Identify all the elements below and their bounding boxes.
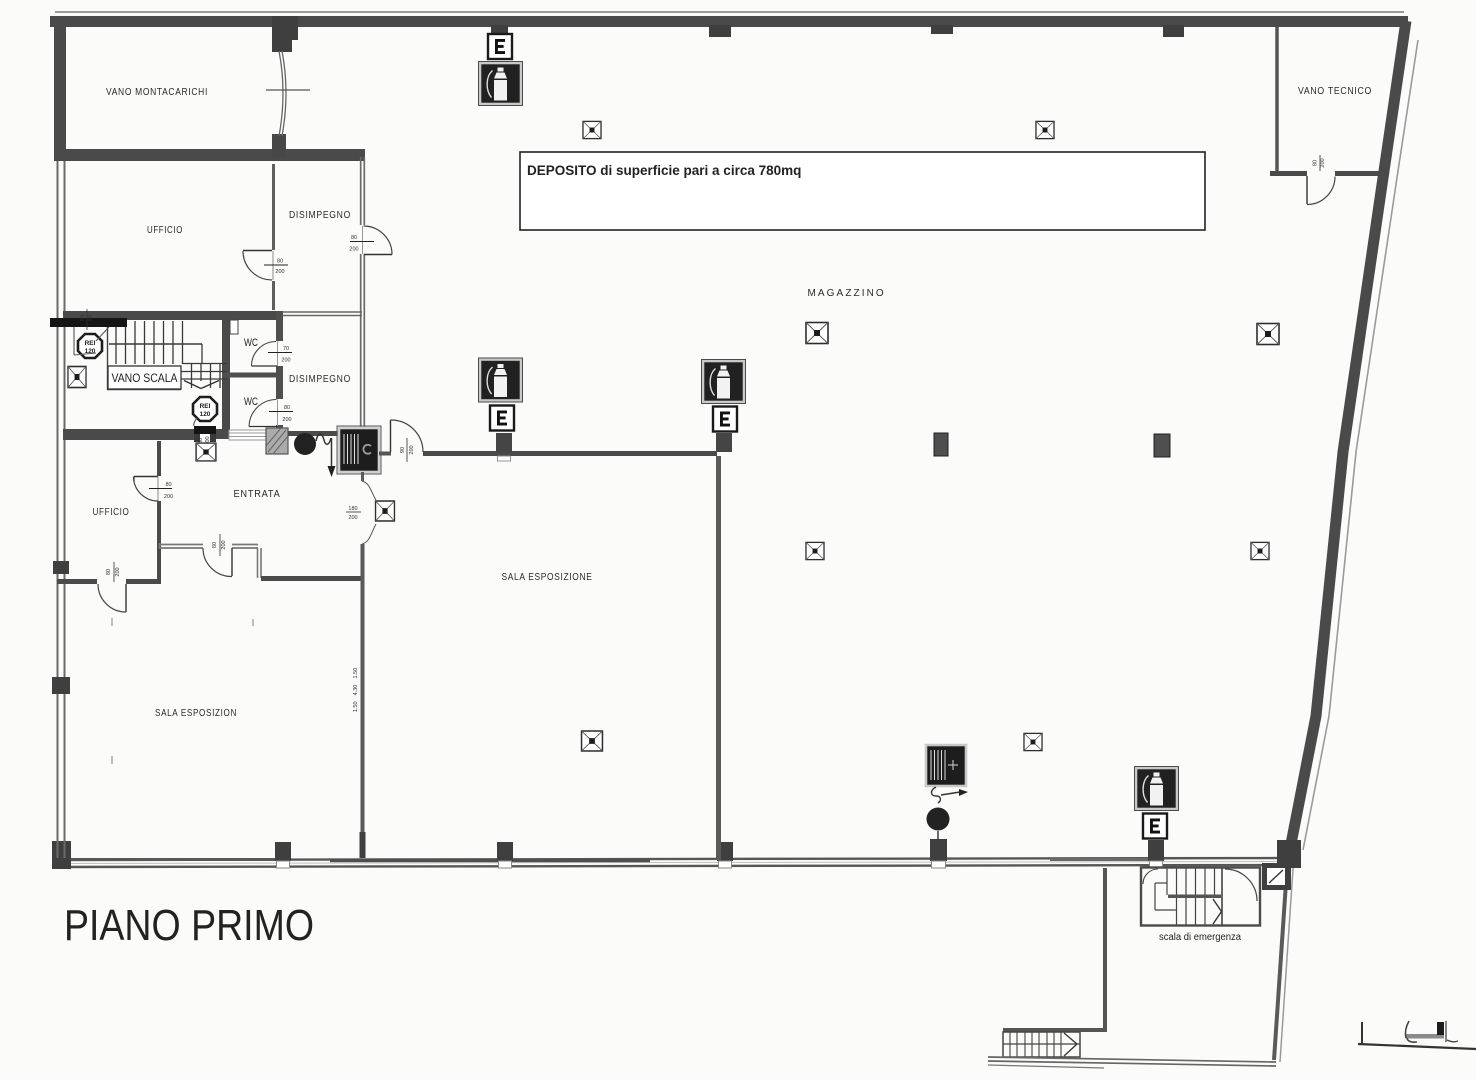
svg-text:200: 200	[348, 515, 357, 521]
svg-text:200: 200	[115, 567, 121, 576]
svg-text:200: 200	[282, 417, 291, 423]
svg-text:80: 80	[1313, 160, 1319, 166]
svg-text:MAGAZZINO: MAGAZZINO	[808, 288, 885, 299]
svg-text:80: 80	[165, 482, 171, 488]
svg-text:SALA ESPOSIZION: SALA ESPOSIZION	[155, 708, 237, 719]
svg-text:200: 200	[164, 494, 173, 500]
svg-text:UFFICIO: UFFICIO	[93, 507, 130, 518]
svg-text:200: 200	[349, 247, 358, 253]
svg-text:VANO MONTACARICHI: VANO MONTACARICHI	[106, 87, 208, 98]
svg-text:80: 80	[80, 315, 86, 321]
svg-text:WC: WC	[244, 337, 258, 349]
svg-text:UFFICIO: UFFICIO	[147, 225, 183, 236]
svg-text:SALA ESPOSIZIONE: SALA ESPOSIZIONE	[502, 572, 593, 583]
svg-text:180: 180	[348, 506, 357, 512]
svg-text:scala di emergenza: scala di emergenza	[1159, 932, 1241, 943]
svg-text:VANO SCALA: VANO SCALA	[112, 371, 178, 385]
svg-text:80: 80	[212, 542, 218, 548]
svg-text:70: 70	[283, 346, 289, 352]
svg-text:DEPOSITO di superficie pari a: DEPOSITO di superficie pari a circa 780m…	[527, 163, 801, 178]
svg-text:200: 200	[409, 445, 415, 454]
svg-text:80: 80	[106, 569, 112, 575]
svg-text:80: 80	[277, 259, 283, 265]
svg-text:200: 200	[1320, 158, 1326, 167]
svg-text:80: 80	[284, 405, 290, 411]
svg-text:90: 90	[88, 315, 94, 321]
svg-text:VANO TECNICO: VANO TECNICO	[1298, 86, 1372, 97]
svg-text:PIANO PRIMO: PIANO PRIMO	[64, 901, 314, 950]
svg-text:DISIMPEGNO: DISIMPEGNO	[289, 374, 351, 385]
svg-text:DISIMPEGNO: DISIMPEGNO	[289, 210, 351, 221]
svg-text:90: 90	[400, 447, 406, 453]
svg-text:200: 200	[275, 269, 284, 275]
svg-text:WC: WC	[244, 396, 258, 408]
svg-text:200: 200	[221, 540, 227, 549]
svg-text:80: 80	[351, 235, 357, 241]
svg-text:ENTRATA: ENTRATA	[234, 489, 281, 500]
svg-text:1.50 4.30 1.50: 1.50 4.30 1.50	[353, 668, 359, 712]
svg-text:200: 200	[281, 358, 290, 364]
